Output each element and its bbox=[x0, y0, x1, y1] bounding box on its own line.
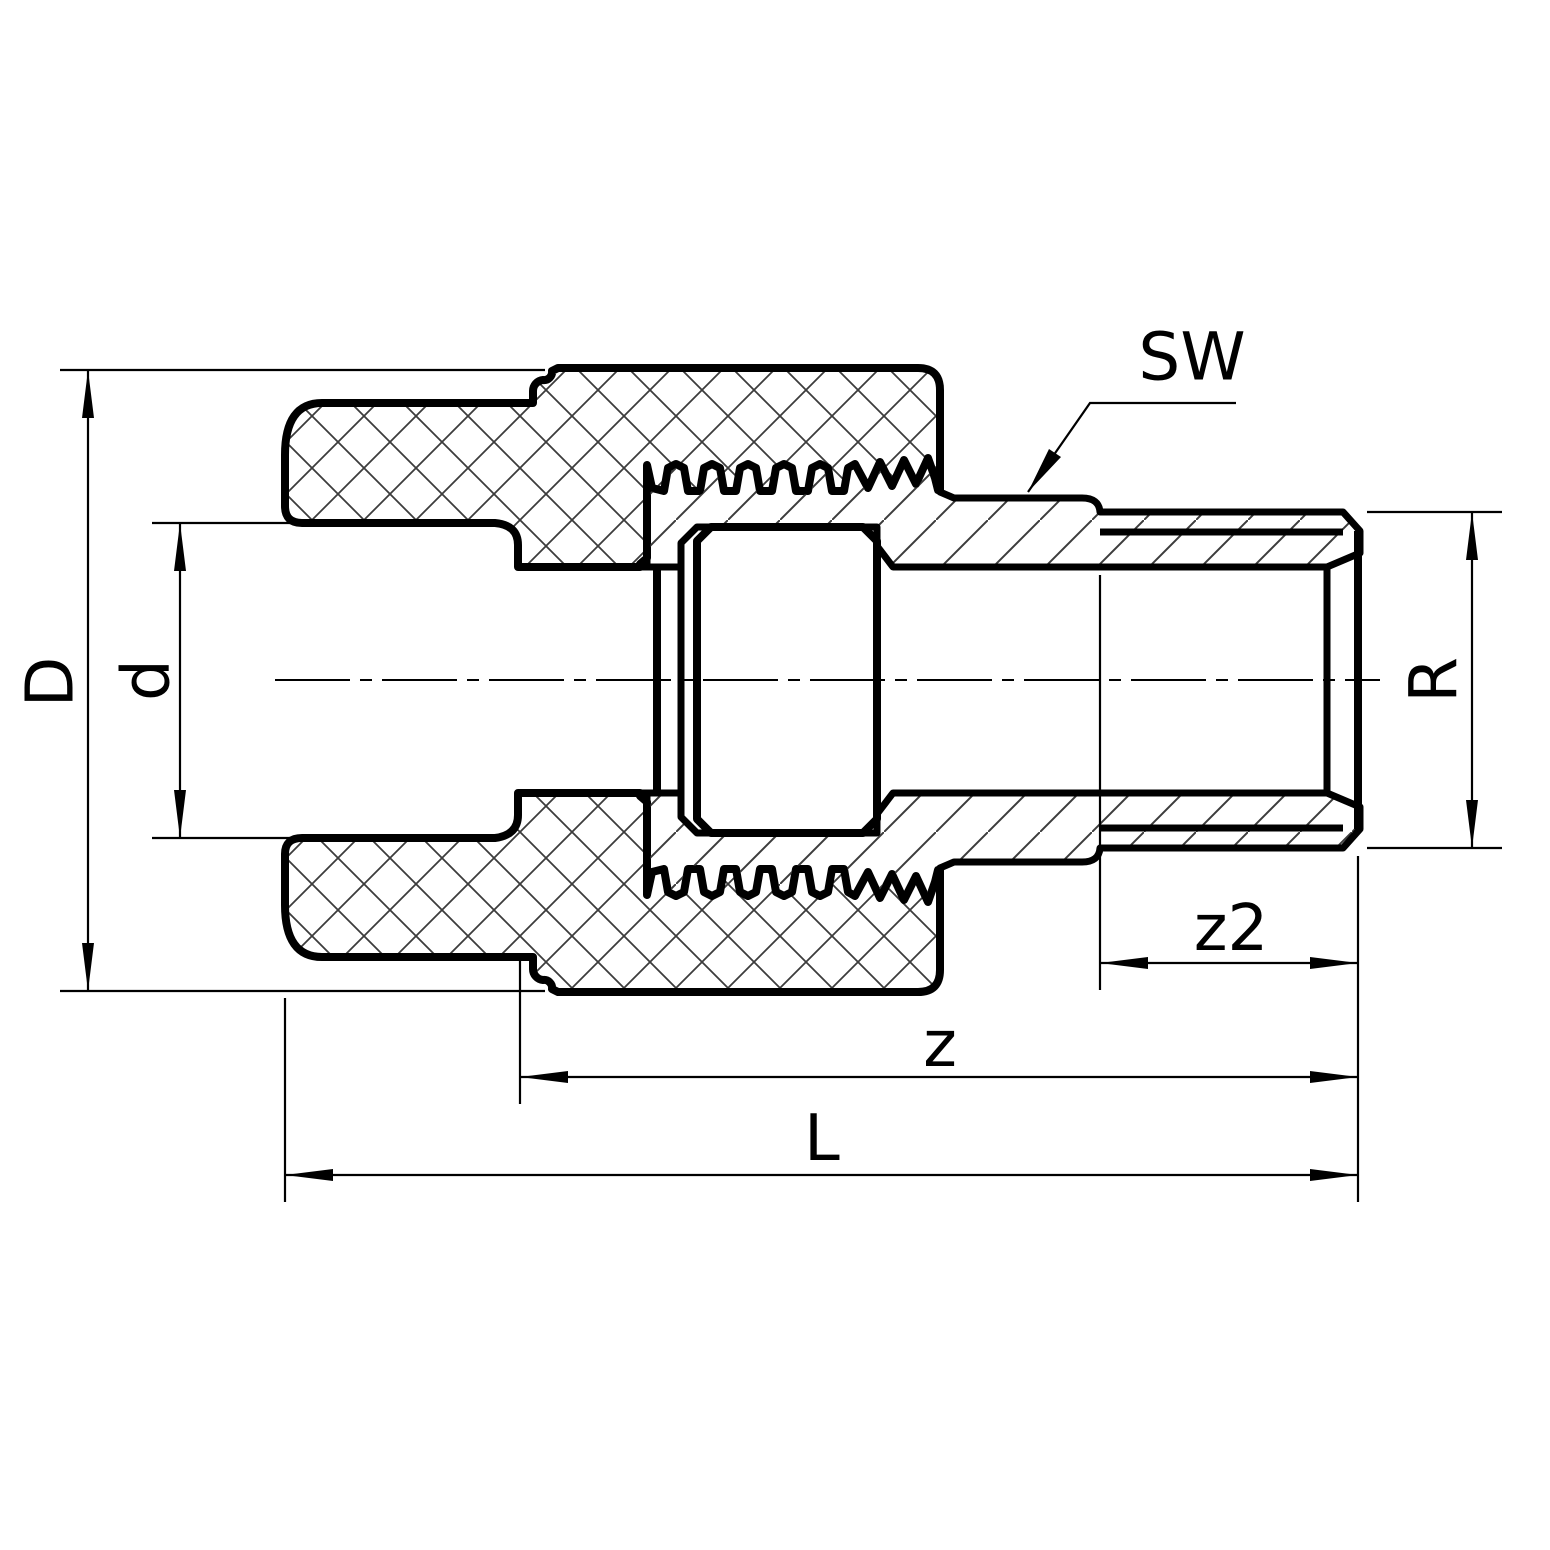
arrow-R-bottom bbox=[1466, 800, 1478, 848]
dim-label-R: R bbox=[1396, 657, 1473, 703]
arrow-L-left bbox=[285, 1169, 333, 1181]
fitting-section-drawing: D d R SW z2 z L bbox=[0, 0, 1550, 1550]
arrow-d-top bbox=[174, 523, 186, 571]
arrow-z2-right bbox=[1310, 957, 1358, 969]
arrow-z2-left bbox=[1100, 957, 1148, 969]
dim-label-d: d bbox=[108, 659, 185, 701]
arrow-D-top bbox=[82, 370, 94, 418]
arrow-d-bottom bbox=[174, 790, 186, 838]
arrow-L-right bbox=[1310, 1169, 1358, 1181]
arrow-D-bottom bbox=[82, 943, 94, 991]
dim-label-SW: SW bbox=[1138, 319, 1245, 396]
sw-leader-line bbox=[1028, 403, 1236, 492]
arrow-z-right bbox=[1310, 1071, 1358, 1083]
dim-label-z2: z2 bbox=[1194, 892, 1268, 966]
dim-label-z: z bbox=[923, 1008, 957, 1082]
arrow-R-top bbox=[1466, 512, 1478, 560]
arrow-z-left bbox=[520, 1071, 568, 1083]
technical-drawing-canvas: D d R SW z2 z L bbox=[0, 0, 1550, 1550]
dim-label-D: D bbox=[12, 657, 89, 708]
dim-label-L: L bbox=[804, 1102, 840, 1176]
arrow-sw-leader bbox=[1028, 449, 1061, 492]
